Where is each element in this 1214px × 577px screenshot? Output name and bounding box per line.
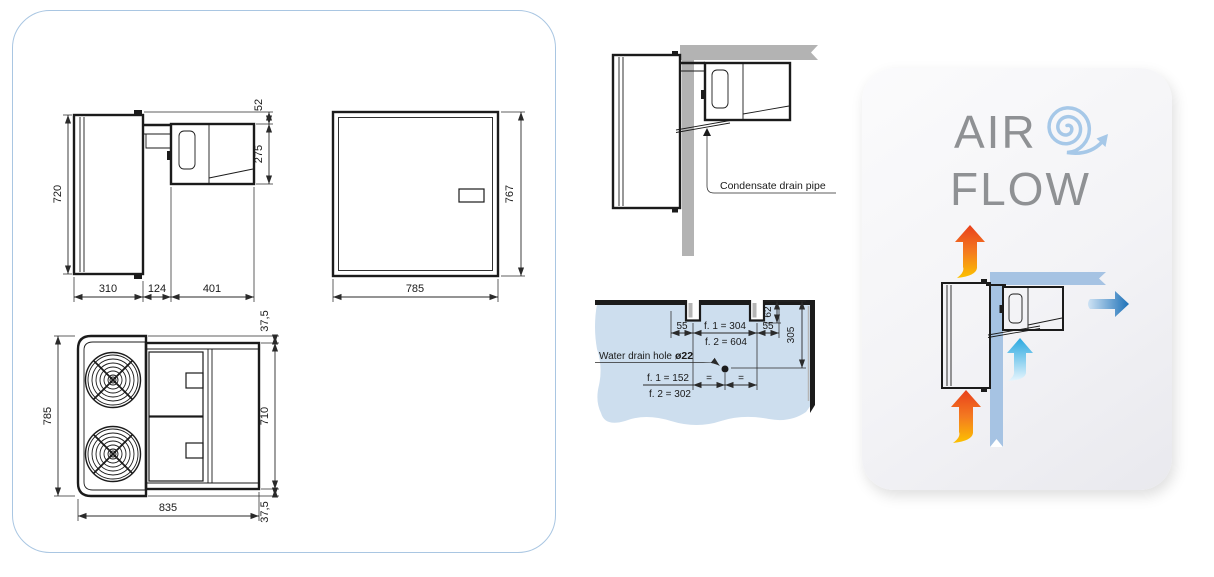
dim-55-left: 55 [676, 321, 688, 332]
drain-diameter-label: ø22 [675, 350, 693, 362]
top-view: 785 835 37,5 710 37,5 [42, 310, 279, 522]
water-drain-hole-dot [722, 366, 729, 373]
equal-mark-right: = [738, 373, 744, 384]
callout-arrow-icon [703, 128, 711, 136]
fan-grille-2 [86, 427, 141, 482]
dim-total-width: 835 [159, 502, 177, 514]
equal-mark-left: = [706, 373, 712, 384]
dim-front-height: 767 [504, 185, 516, 203]
dim-f1-304: f. 1 = 304 [704, 321, 746, 332]
dim-depth-inside: 310 [99, 283, 117, 295]
dim-305: 305 [786, 326, 797, 343]
orthographic-views-drawing: 720 310 124 401 52 275 [13, 11, 553, 550]
dim-front-width: 785 [406, 283, 424, 295]
dim-side-height: 720 [52, 185, 64, 203]
flow-ceiling-strip [990, 272, 1106, 285]
airflow-title-line1: AIR [954, 106, 1037, 158]
dim-62: 62 [763, 306, 774, 318]
airflow-title-line2: FLOW [950, 163, 1091, 215]
dim-top-body-height: 785 [42, 407, 54, 425]
airflow-diagram: AIR FLOW [862, 68, 1172, 490]
dim-top-offset: 52 [253, 99, 265, 111]
hot-air-arrow-top-icon [955, 225, 985, 278]
dim-unit-depth: 710 [259, 407, 271, 425]
airflow-sketch [942, 225, 1129, 447]
fan-grille-1 [86, 353, 141, 408]
dimensions-panel: 720 310 124 401 52 275 [12, 10, 556, 553]
water-drain-hole-label: Water drain hole [599, 351, 672, 362]
bracket-notch-left [686, 300, 700, 321]
dim-55-right: 55 [762, 321, 774, 332]
condensate-callout: Condensate drain pipe [703, 128, 836, 193]
wall-installation-view: Condensate drain pipe [588, 28, 840, 263]
dim-f2-604: f. 2 = 604 [705, 337, 747, 348]
exhaust-air-arrow-icon [1088, 291, 1129, 317]
ceiling-section [680, 45, 818, 60]
dim-f1-152: f. 1 = 152 [647, 373, 689, 384]
side-view: 720 310 124 401 52 275 [52, 99, 273, 302]
condensate-drain-pipe-label: Condensate drain pipe [720, 180, 826, 192]
dim-unit-height: 275 [253, 145, 265, 163]
wall-section [682, 60, 694, 256]
airflow-panel: AIR FLOW [862, 68, 1172, 490]
technical-drawing-page: 720 310 124 401 52 275 [0, 0, 1214, 577]
dim-depth-outside: 401 [203, 283, 221, 295]
dim-f2-302: f. 2 = 302 [649, 389, 691, 400]
dim-offset-bottom: 37,5 [259, 501, 271, 522]
bracket-notch-right [750, 300, 764, 321]
hot-air-arrow-bottom-icon [951, 390, 981, 443]
spiral-air-icon [1049, 108, 1108, 153]
front-view: 785 767 [333, 112, 525, 302]
dim-wall-thickness: 124 [148, 283, 166, 295]
wall-template-view: 55 f. 1 = 304 f. 2 = 604 55 62 305 f. 1 … [585, 283, 843, 438]
dim-offset-top: 37,5 [259, 310, 271, 331]
cold-air-arrow-icon [1007, 338, 1033, 381]
wall-cutout-blue-area [595, 304, 811, 425]
